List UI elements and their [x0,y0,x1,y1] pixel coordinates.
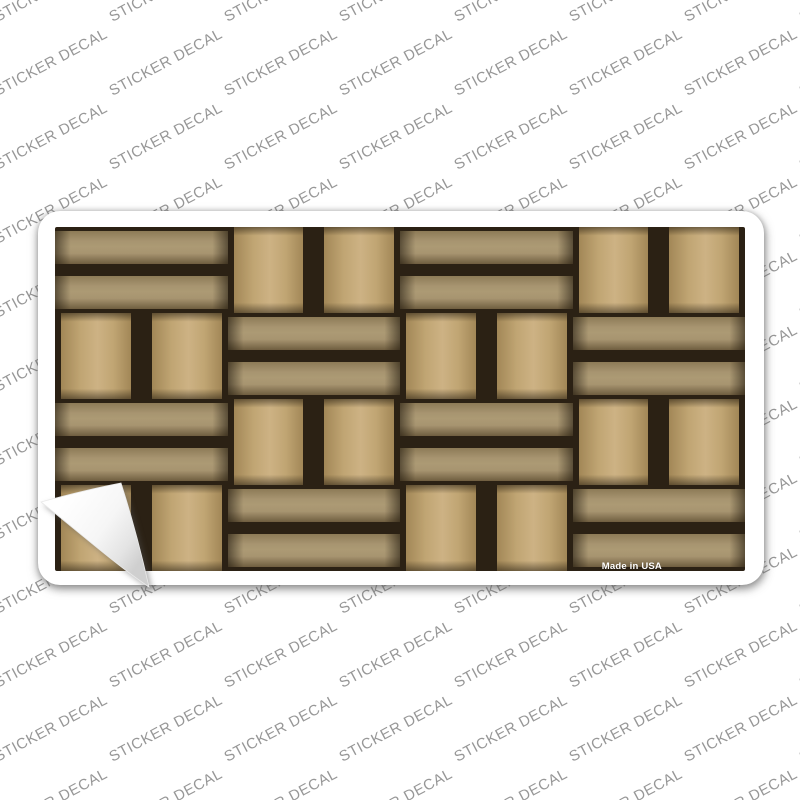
vertical-strip [152,485,222,571]
watermark-text: STICKER DECAL [451,99,570,173]
watermark-text: STICKER DECAL [336,99,455,173]
watermark-text: STICKER DECAL [681,617,800,691]
watermark-text: STICKER DECAL [221,765,340,800]
horizontal-strip [55,403,228,436]
weave-tile-vertical [228,399,401,485]
horizontal-strip [228,317,401,350]
watermark-text: STICKER DECAL [681,99,800,173]
watermark-text: STICKER DECAL [221,99,340,173]
watermark-text: STICKER DECAL [336,617,455,691]
horizontal-strip [573,317,746,350]
watermark-text: STICKER DECAL [0,691,110,765]
vertical-strip [497,313,567,399]
vertical-strip [406,485,476,571]
watermark-text: STICKER DECAL [0,617,110,691]
weave-tile-horizontal [573,485,746,571]
peel-corner-flap [35,469,155,595]
watermark-text: STICKER DECAL [451,0,570,26]
horizontal-strip [55,231,228,264]
weave-tile-horizontal [573,313,746,399]
watermark-text: STICKER DECAL [796,0,800,26]
weave-tile-vertical [228,227,401,313]
watermark-text: STICKER DECAL [451,25,570,99]
watermark-text: STICKER DECAL [221,617,340,691]
vertical-strip [669,399,739,485]
watermark-text: STICKER DECAL [0,99,110,173]
watermark-text: STICKER DECAL [451,617,570,691]
weave-tile-vertical [573,227,746,313]
watermark-text: STICKER DECAL [681,691,800,765]
vertical-strip [324,399,394,485]
horizontal-strip [573,362,746,395]
vertical-strip [497,485,567,571]
watermark-text: STICKER DECAL [566,691,685,765]
watermark-text: STICKER DECAL [0,0,110,26]
watermark-text: STICKER DECAL [336,0,455,26]
watermark-text: STICKER DECAL [451,765,570,800]
watermark-text: STICKER DECAL [566,765,685,800]
peel-corner-flap-shape [41,483,149,587]
horizontal-strip [228,362,401,395]
weave-tile-vertical [55,313,228,399]
watermark-text: STICKER DECAL [681,0,800,26]
watermark-text: STICKER DECAL [796,765,800,800]
watermark-text: STICKER DECAL [106,617,225,691]
made-in-usa-label: Made in USA [602,561,662,572]
watermark-text: STICKER DECAL [681,25,800,99]
weave-tile-vertical [573,399,746,485]
watermark-text: STICKER DECAL [336,765,455,800]
horizontal-strip [400,448,573,481]
watermark-text: STICKER DECAL [106,99,225,173]
watermark-text: STICKER DECAL [221,25,340,99]
horizontal-strip [55,276,228,309]
vertical-strip [234,227,304,313]
horizontal-strip [573,489,746,522]
watermark-text: STICKER DECAL [106,765,225,800]
watermark-text: STICKER DECAL [221,0,340,26]
vertical-strip [234,399,304,485]
watermark-text: STICKER DECAL [336,691,455,765]
sticker-decal: Made in USA [38,211,764,585]
vertical-strip [406,313,476,399]
watermark-text: STICKER DECAL [106,25,225,99]
weave-tile-horizontal [55,227,228,313]
watermark-text: STICKER DECAL [336,25,455,99]
vertical-strip [579,399,649,485]
weave-tile-vertical [400,313,573,399]
watermark-text: STICKER DECAL [0,765,110,800]
weave-pattern [55,227,745,571]
horizontal-strip [400,276,573,309]
horizontal-strip [400,231,573,264]
vertical-strip [324,227,394,313]
vertical-strip [669,227,739,313]
weave-tile-horizontal [400,399,573,485]
vertical-strip [579,227,649,313]
watermark-text: STICKER DECAL [106,0,225,26]
watermark-text: STICKER DECAL [566,0,685,26]
weave-tile-horizontal [400,227,573,313]
horizontal-strip [228,489,401,522]
watermark-text: STICKER DECAL [221,691,340,765]
watermark-text: STICKER DECAL [566,99,685,173]
horizontal-strip [400,403,573,436]
watermark-text: STICKER DECAL [106,691,225,765]
vertical-strip [61,313,131,399]
horizontal-strip [228,534,401,567]
watermark-text: STICKER DECAL [566,617,685,691]
weave-tile-horizontal [228,485,401,571]
watermark-text: STICKER DECAL [0,25,110,99]
product-image: STICKER DECALSTICKER DECALSTICKER DECALS… [0,0,800,800]
watermark-text: STICKER DECAL [681,765,800,800]
weave-tile-horizontal [228,313,401,399]
watermark-text: STICKER DECAL [451,691,570,765]
vertical-strip [152,313,222,399]
weave-tile-vertical [400,485,573,571]
watermark-text: STICKER DECAL [566,25,685,99]
